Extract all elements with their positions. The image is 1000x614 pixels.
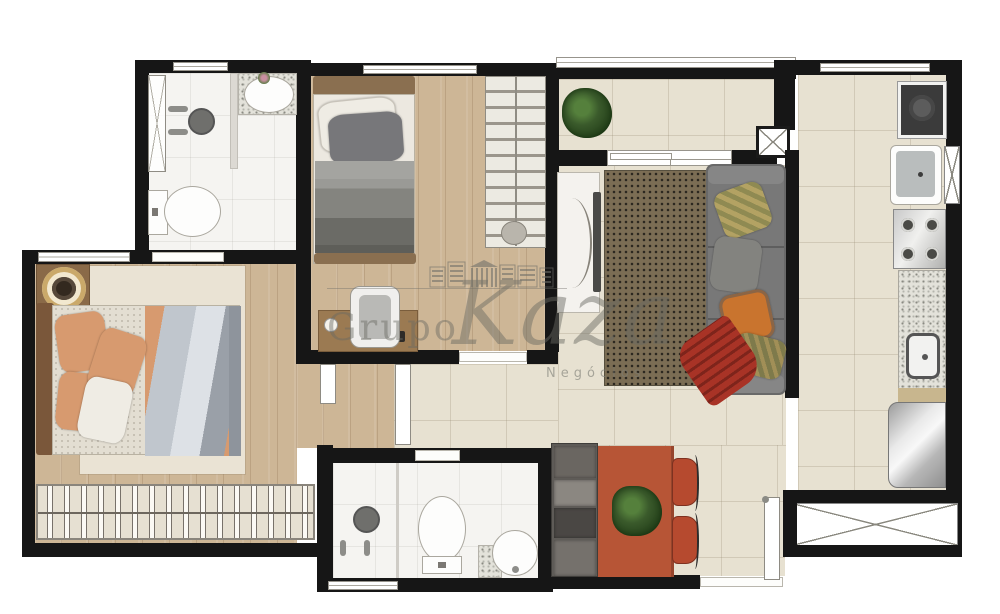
chair-leg: [691, 455, 699, 511]
bed-blanket: [145, 306, 241, 456]
bench-cushion: [554, 540, 596, 576]
sofa-armrest: [708, 166, 784, 184]
shower-divider: [396, 463, 399, 578]
window-master: [38, 252, 130, 262]
door-opening-bath2: [415, 450, 460, 461]
table-plant: [612, 486, 662, 536]
door-leaf-master: [320, 364, 336, 404]
wall-bed2-bottom-right: [527, 350, 558, 364]
toilet-flush-button: [152, 208, 158, 216]
wall-above-shaft: [774, 60, 795, 130]
tv-stand-arc: [552, 198, 592, 288]
chair-leg: [691, 513, 699, 569]
dining-bench: [551, 443, 598, 577]
desk-chair-seat: [359, 295, 391, 339]
toilet-bowl: [164, 186, 221, 237]
laundry-tank: [890, 145, 942, 205]
sink-drain: [922, 354, 928, 360]
sofa-pillow-gray: [708, 235, 763, 295]
bed-footer: [229, 306, 241, 456]
double-bed: [52, 305, 240, 455]
round-lamp-center: [52, 277, 76, 300]
vanity-sink: [244, 76, 294, 113]
single-bed-blanket: [315, 161, 414, 253]
window-bath2: [328, 581, 398, 590]
wall-right: [946, 60, 962, 557]
hallway-floor: [394, 364, 558, 448]
shower-faucet: [168, 106, 188, 112]
shower-faucet: [168, 129, 188, 135]
wall-between-bedrooms: [296, 60, 311, 364]
shower-head: [188, 108, 215, 135]
balcony-rail-wall: [556, 68, 796, 79]
dining-chair: [672, 516, 698, 564]
shower-glass: [148, 75, 166, 172]
bench-cushion: [554, 480, 596, 506]
wardrobe-hangers: [36, 484, 315, 540]
sink-faucet: [512, 566, 519, 573]
door-opening-bath1: [152, 252, 224, 262]
wall-bath2-left: [317, 445, 333, 592]
wall-bath1-left: [135, 60, 149, 264]
closet-object: [501, 221, 527, 245]
window-bath1: [173, 62, 228, 71]
single-bed-headboard: [313, 76, 415, 96]
kitchen-sink: [906, 333, 940, 379]
washing-machine: [898, 82, 946, 138]
desk-chair: [350, 286, 400, 348]
wardrobe-rail: [38, 512, 315, 514]
washer-drum: [909, 95, 935, 121]
wall-kitchen-left: [785, 150, 799, 398]
single-bed: [313, 94, 415, 264]
shower-partition: [230, 73, 238, 169]
toilet-bowl: [418, 496, 466, 562]
toilet-flush-button: [438, 562, 446, 568]
shower-faucet: [340, 540, 346, 556]
floor-plan: Grupo Kaza Negócios: [0, 0, 1000, 614]
window-bed2: [363, 65, 477, 74]
burner: [901, 218, 915, 232]
wall-left: [22, 250, 35, 557]
wall-bed2-bottom: [296, 350, 459, 364]
single-bed-footboard: [314, 253, 416, 264]
burner: [925, 247, 939, 261]
window-bottom-right: [793, 503, 958, 546]
window-service: [944, 146, 960, 204]
entry-door-knob: [762, 496, 769, 503]
entry-door-leaf: [764, 497, 780, 580]
sink-flower-decor: [258, 72, 270, 84]
desk-lamp: [324, 318, 338, 332]
single-bed-pillow: [327, 110, 404, 165]
burner: [901, 247, 915, 261]
dining-chair: [672, 458, 698, 506]
laundry-drain: [918, 172, 923, 177]
wall-balcony-bottom-left: [545, 150, 607, 166]
shelf-closet: [485, 76, 546, 248]
balcony-railing: [556, 57, 796, 68]
shower-head: [353, 506, 380, 533]
wall-kitchen-bottom: [783, 490, 962, 503]
laundry-basin: [896, 151, 935, 197]
counter-end: [898, 388, 946, 402]
burner: [925, 218, 939, 232]
sliding-door-panel: [610, 153, 672, 160]
cooktop: [893, 209, 946, 269]
wall-dining-bottom: [553, 575, 700, 589]
door-leaf-bathroom: [395, 364, 411, 445]
tv-screen: [593, 192, 601, 292]
master-entry-nook-floor: [296, 364, 395, 448]
shower-faucet: [364, 540, 370, 556]
wall-master-bottom: [22, 543, 317, 557]
balcony-plant: [562, 88, 612, 138]
wall-below-window: [793, 545, 962, 557]
window-kitchen-top: [820, 63, 930, 72]
bench-cushion: [554, 446, 596, 478]
wall-entry-side: [783, 503, 797, 557]
fridge: [888, 402, 946, 488]
door-opening-bed2: [459, 352, 527, 362]
bench-cushion: [554, 508, 596, 538]
